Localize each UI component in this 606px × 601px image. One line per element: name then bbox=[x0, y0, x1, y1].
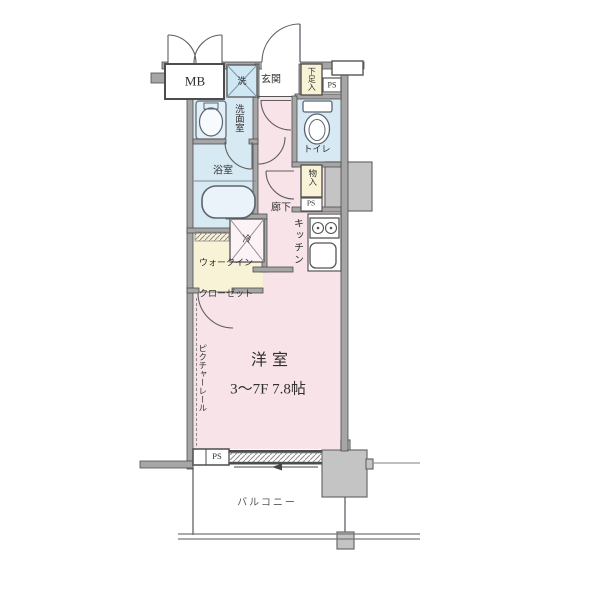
floor-plan: MB 洗 玄関 下足入 PS 洗面室 トイレ 浴室 廊下 物入 PS キッチン … bbox=[0, 0, 606, 601]
stove-icon bbox=[310, 218, 339, 238]
shoe-cabinet-label: 下足入 bbox=[307, 67, 316, 91]
storage-label: 物入 bbox=[307, 169, 317, 186]
walk-in-closet-line2: クローゼット bbox=[199, 288, 253, 298]
washbasin-icon bbox=[196, 101, 226, 139]
washing-machine-label: 洗 bbox=[237, 76, 246, 86]
duct-box bbox=[332, 61, 363, 75]
balcony-label: バルコニー bbox=[237, 497, 297, 509]
kitchen-label: キッチン bbox=[291, 218, 303, 266]
mb-door-arcs bbox=[168, 35, 222, 63]
hallway-label: 廊下 bbox=[271, 202, 291, 214]
ps-top-label: PS bbox=[328, 80, 337, 89]
balcony-outline bbox=[178, 463, 420, 539]
ps-mid-label: PS bbox=[307, 200, 315, 209]
main-room-size-label: 3〜7F 7.8帖 bbox=[230, 381, 306, 398]
walk-in-closet-label: ウォークイン クローゼット bbox=[199, 237, 253, 320]
ps-bottom-label: PS bbox=[212, 452, 221, 462]
toilet-label: トイレ bbox=[303, 144, 330, 154]
picture-rail-label: ピクチャーレール bbox=[197, 344, 207, 412]
mb-label: MB bbox=[185, 75, 205, 90]
kitchen-sink-icon bbox=[310, 243, 336, 268]
main-room-label: 洋室 bbox=[251, 352, 293, 370]
entrance-door-arc bbox=[262, 24, 300, 62]
toilet-icon bbox=[303, 101, 332, 144]
floor-plan-drawing bbox=[0, 0, 606, 601]
walk-in-closet-line1: ウォークイン bbox=[199, 257, 253, 267]
bathtub-icon bbox=[202, 186, 255, 218]
entrance-label: 玄関 bbox=[261, 74, 281, 86]
bathroom-label: 浴室 bbox=[213, 165, 233, 177]
washroom-label: 洗面室 bbox=[232, 104, 243, 133]
